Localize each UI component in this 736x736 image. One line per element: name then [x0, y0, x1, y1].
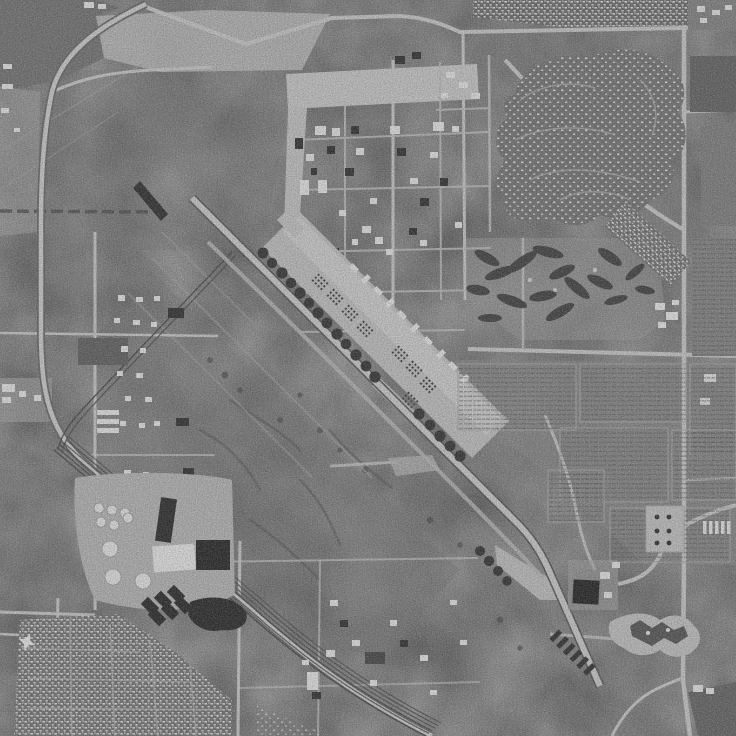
aerial-photo: [0, 0, 736, 736]
film-grain-dark: [0, 0, 736, 736]
aerial-photo-canvas: [0, 0, 736, 736]
